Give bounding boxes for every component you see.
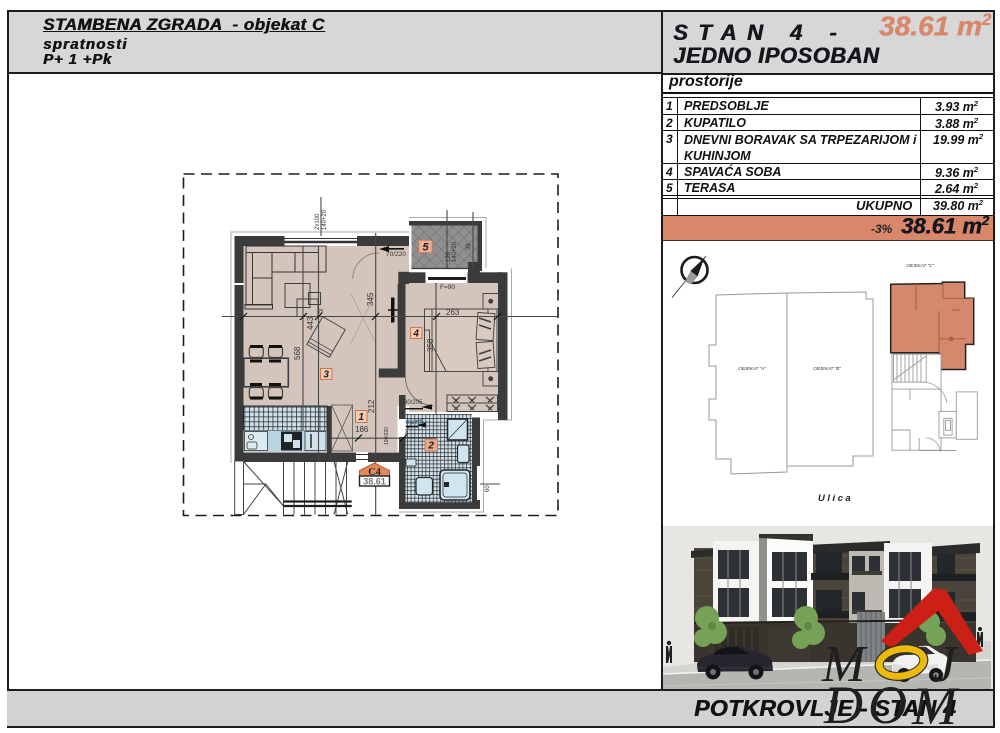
svg-text:263: 263	[446, 308, 460, 317]
svg-text:2x100: 2x100	[315, 213, 321, 230]
svg-text:1: 1	[358, 412, 364, 423]
svg-text:O: O	[868, 675, 907, 733]
svg-text:140+20: 140+20	[322, 209, 328, 230]
svg-text:25: 25	[318, 309, 324, 315]
svg-text:38: 38	[466, 243, 472, 250]
svg-text:D: D	[823, 675, 863, 733]
svg-text:212: 212	[367, 399, 376, 413]
svg-text:70/220: 70/220	[386, 251, 406, 258]
svg-text:F=90: F=90	[440, 284, 455, 291]
svg-text:M: M	[911, 676, 960, 733]
svg-text:186: 186	[355, 425, 369, 434]
svg-text:2: 2	[427, 441, 434, 452]
svg-text:190/220: 190/220	[384, 427, 390, 445]
svg-text:38.61: 38.61	[363, 477, 386, 487]
svg-text:140+20: 140+20	[452, 241, 458, 262]
svg-text:4: 4	[412, 329, 419, 340]
svg-text:443: 443	[306, 316, 315, 330]
svg-text:3: 3	[323, 370, 329, 381]
svg-text:5: 5	[422, 242, 429, 254]
svg-text:80/205: 80/205	[406, 420, 425, 426]
svg-text:60: 60	[485, 485, 491, 492]
svg-text:345: 345	[366, 292, 375, 306]
svg-text:358: 358	[426, 338, 435, 352]
svg-text:90/205: 90/205	[404, 400, 423, 406]
svg-text:568: 568	[293, 346, 302, 360]
